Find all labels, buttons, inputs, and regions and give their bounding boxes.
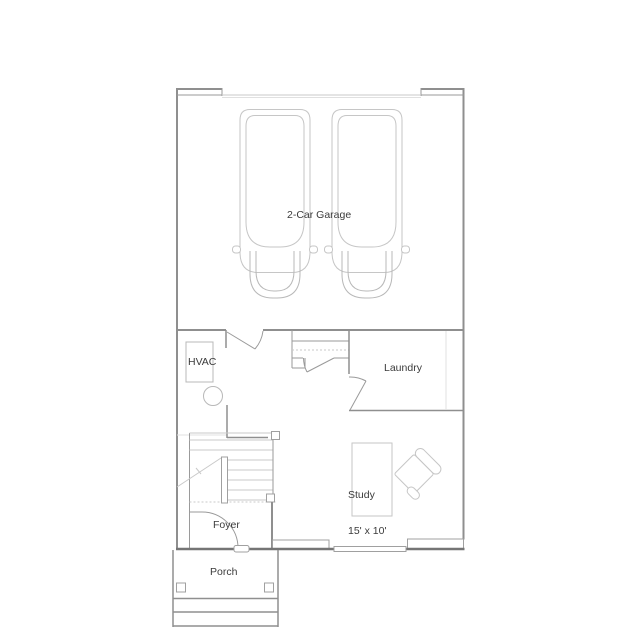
laundry-label: Laundry xyxy=(384,362,422,374)
window-left xyxy=(273,540,330,549)
stair-direction-line xyxy=(177,458,221,487)
porch-posts xyxy=(177,583,274,592)
study-label-name: Study xyxy=(348,489,386,501)
front-door xyxy=(234,546,249,553)
water-heater xyxy=(204,387,223,406)
study-chair xyxy=(391,446,445,500)
floor-plan-drawing xyxy=(0,0,639,639)
study-label-size: 15' x 10' xyxy=(348,525,386,537)
hvac-label: HVAC xyxy=(188,356,216,368)
staircase xyxy=(177,432,280,550)
window-right xyxy=(408,539,464,549)
floor-plan: 2-Car Garage HVAC Laundry Study 15' x 10… xyxy=(0,0,639,639)
garage-door-opening xyxy=(222,95,421,98)
garage-entry-door xyxy=(227,331,263,349)
coat-closet xyxy=(292,330,349,368)
porch-label: Porch xyxy=(210,566,237,578)
study-label: Study 15' x 10' xyxy=(348,465,386,561)
stair-newel-bottom xyxy=(267,494,275,502)
porch-steps xyxy=(173,599,278,627)
bottom-windows xyxy=(176,539,465,552)
stair-rail xyxy=(222,457,228,503)
stair-newel-top xyxy=(272,432,280,440)
laundry-door xyxy=(349,377,366,410)
closet-door xyxy=(304,358,335,372)
hvac-closet xyxy=(177,330,227,435)
garage-label: 2-Car Garage xyxy=(287,209,351,221)
porch-outline xyxy=(173,550,278,627)
foyer-label: Foyer xyxy=(213,519,240,531)
car-1 xyxy=(233,110,318,299)
car-2 xyxy=(325,110,410,299)
